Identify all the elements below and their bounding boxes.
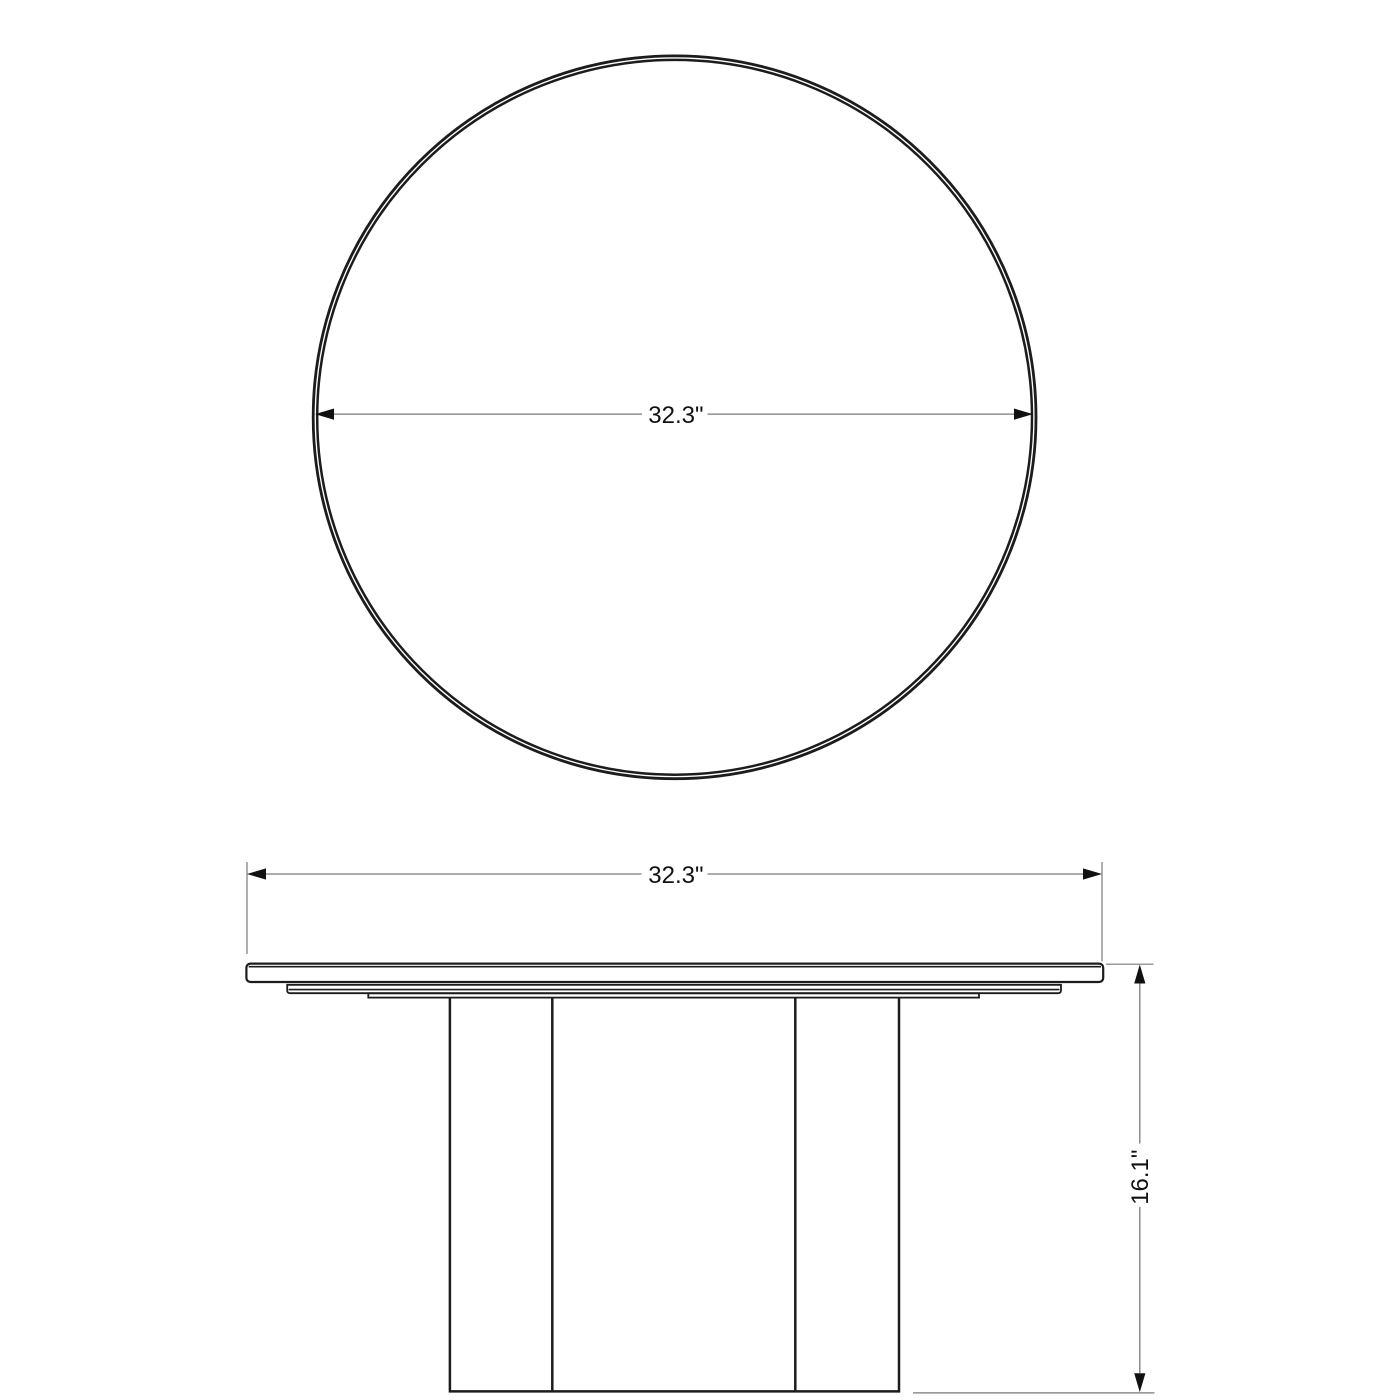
- svg-text:16.1": 16.1": [1127, 1150, 1154, 1205]
- svg-text:32.3": 32.3": [648, 402, 703, 429]
- svg-text:32.3": 32.3": [648, 862, 703, 889]
